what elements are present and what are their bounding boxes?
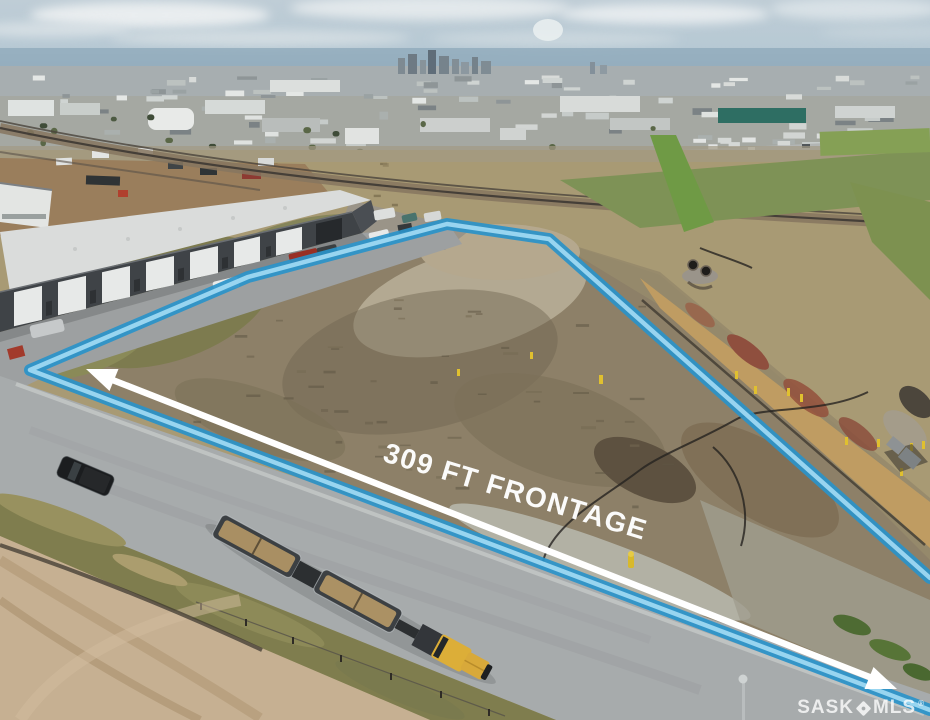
watermark: SASK MLS ® bbox=[797, 697, 925, 719]
fire-hydrant bbox=[628, 551, 634, 568]
man-door bbox=[46, 301, 52, 316]
man-door bbox=[178, 268, 184, 281]
left-small-building bbox=[0, 183, 52, 228]
registered-mark: ® bbox=[918, 699, 925, 708]
scene bbox=[0, 0, 930, 720]
dark-trailer bbox=[86, 175, 120, 185]
teal-warehouse bbox=[718, 108, 806, 123]
garage-door bbox=[14, 286, 42, 326]
garage-door bbox=[58, 276, 86, 315]
mls-diamond-icon bbox=[856, 700, 872, 716]
watermark-prefix: SASK bbox=[797, 697, 854, 719]
garage-door bbox=[102, 266, 130, 303]
man-door bbox=[266, 246, 271, 257]
man-door bbox=[134, 279, 140, 292]
watermark-suffix: MLS bbox=[873, 697, 916, 719]
man-door bbox=[222, 257, 228, 269]
man-door bbox=[90, 290, 96, 304]
aerial-listing-photo: 309 FT FRONTAGE SASK MLS ® bbox=[0, 0, 930, 720]
smoke-plume bbox=[533, 19, 563, 41]
